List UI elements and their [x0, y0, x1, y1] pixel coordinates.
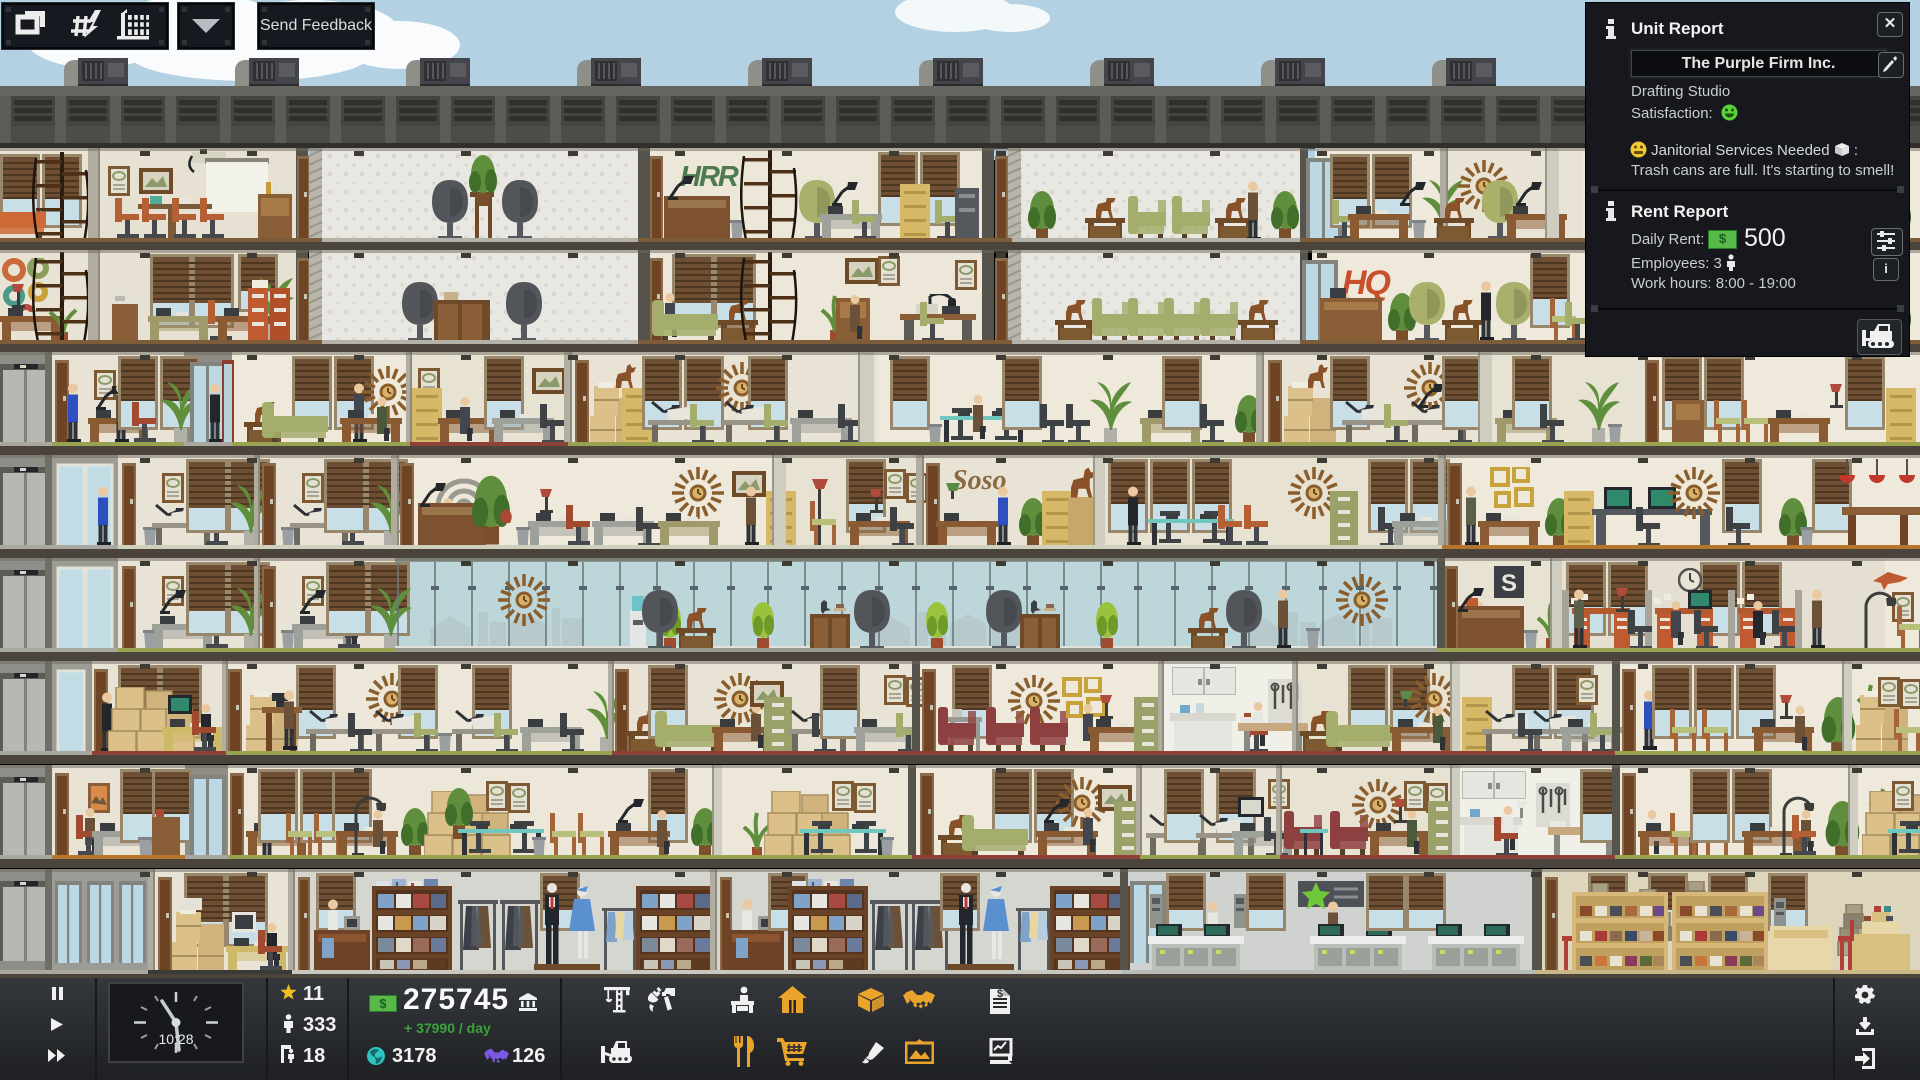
- svg-text:10:28: 10:28: [158, 1031, 193, 1047]
- svg-text:S: S: [1501, 570, 1517, 597]
- svg-text:$: $: [997, 988, 1003, 1000]
